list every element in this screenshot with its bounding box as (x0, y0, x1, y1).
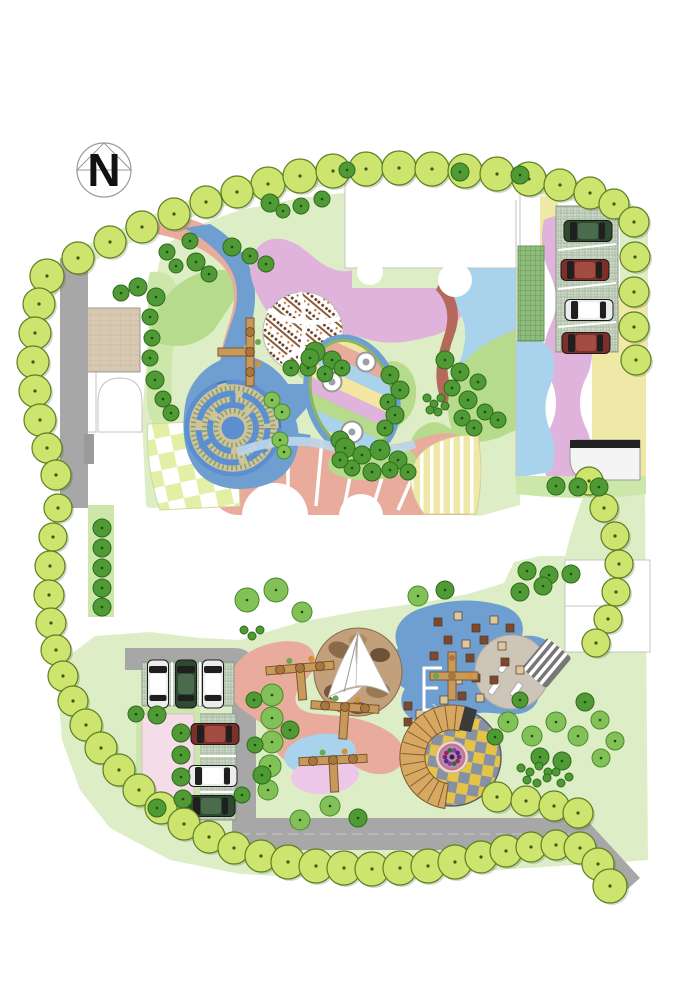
stepping-square (501, 658, 509, 666)
tree (93, 579, 111, 597)
tree (155, 391, 171, 407)
tree (172, 724, 190, 742)
tree (35, 551, 67, 583)
tree (466, 420, 482, 436)
tree (569, 478, 587, 496)
tree (276, 204, 290, 218)
stepping-square (404, 702, 412, 710)
tree (274, 404, 290, 420)
stepping-square (490, 676, 498, 684)
tree (332, 452, 348, 468)
site-plan-page: N (0, 0, 699, 989)
tree (317, 366, 333, 382)
stepping-square (458, 692, 466, 700)
tree (591, 711, 609, 729)
tree (334, 360, 350, 376)
car (148, 660, 169, 708)
tree (349, 809, 367, 827)
tree (400, 464, 416, 480)
tree (436, 351, 454, 369)
tree (511, 583, 529, 601)
compass-letter: N (87, 144, 120, 196)
tree (242, 248, 258, 264)
car (189, 766, 237, 787)
tree (234, 787, 250, 803)
tree (370, 440, 390, 460)
tree (451, 363, 469, 381)
tree (93, 559, 111, 577)
tree (533, 779, 541, 787)
tree (172, 746, 190, 764)
tree (576, 693, 594, 711)
tree (174, 790, 192, 808)
tree (301, 349, 319, 367)
north-compass: N (77, 143, 131, 197)
car (562, 333, 610, 354)
tree (129, 278, 147, 296)
tree (444, 380, 460, 396)
tree (518, 562, 536, 580)
tree (522, 726, 542, 746)
tree (511, 166, 529, 184)
tree (253, 766, 271, 784)
tree (314, 191, 330, 207)
tree (534, 577, 552, 595)
tree (283, 360, 299, 376)
stepping-square (506, 624, 514, 632)
tree (201, 266, 217, 282)
stepping-square (444, 636, 452, 644)
tree (451, 163, 469, 181)
tree (436, 581, 454, 599)
car (561, 260, 609, 281)
site-plan-svg: N (0, 0, 699, 989)
tree (148, 706, 166, 724)
tree (382, 462, 398, 478)
tree (517, 764, 525, 772)
tree (24, 404, 58, 438)
tree (264, 578, 288, 602)
stepping-square (466, 654, 474, 662)
tree (568, 726, 588, 746)
tree (547, 477, 565, 495)
tree (290, 810, 310, 830)
tree (147, 288, 165, 306)
tree (487, 729, 503, 745)
tree (159, 244, 175, 260)
tree (246, 692, 262, 708)
tree (261, 731, 283, 753)
tree (292, 602, 312, 622)
tree (363, 463, 381, 481)
stepping-square (476, 694, 484, 702)
stepping-square (434, 618, 442, 626)
tree (320, 796, 340, 816)
tree (408, 586, 428, 606)
tree (247, 737, 263, 753)
tree (441, 402, 449, 410)
tree (546, 712, 566, 732)
tree (277, 445, 291, 459)
tree (526, 768, 534, 776)
tree (377, 420, 393, 436)
fan-scallop-small (339, 494, 383, 538)
tree (498, 712, 518, 732)
tree (144, 330, 160, 346)
tree (426, 406, 434, 414)
car (176, 660, 197, 708)
tree (434, 408, 442, 416)
tree (240, 626, 248, 634)
tree (557, 779, 565, 787)
tree (235, 588, 259, 612)
tree (565, 773, 573, 781)
road-stub (84, 434, 94, 464)
tree (592, 749, 610, 767)
tree (535, 762, 543, 770)
stepping-square (480, 636, 488, 644)
stepping-square (516, 666, 524, 674)
fan-scallop-large (242, 483, 308, 549)
tree (113, 285, 129, 301)
tree (562, 565, 580, 583)
tree (339, 162, 355, 178)
tree (281, 721, 299, 739)
tree (261, 684, 283, 706)
tree (148, 799, 166, 817)
tree (523, 776, 531, 784)
tree (142, 350, 158, 366)
car (565, 300, 613, 321)
stepping-square (498, 642, 506, 650)
stepping-square (472, 624, 480, 632)
tree (606, 732, 624, 750)
tree (93, 519, 111, 537)
car (203, 660, 224, 708)
tree (256, 626, 264, 634)
tree (169, 259, 183, 273)
tree (552, 768, 560, 776)
stepping-square (440, 696, 448, 704)
tree (512, 692, 528, 708)
car (564, 221, 612, 242)
tree (590, 478, 608, 496)
tree (437, 394, 445, 402)
lightblue-band-east (516, 338, 555, 478)
tree (146, 371, 164, 389)
tree (543, 774, 551, 782)
tree (459, 391, 477, 409)
tree (187, 253, 205, 271)
tree (223, 238, 241, 256)
tree (93, 598, 111, 616)
tree (490, 412, 506, 428)
tree (142, 309, 158, 325)
trellis-strip (518, 246, 544, 341)
tree (93, 539, 111, 557)
tree (553, 752, 571, 770)
tree (182, 233, 198, 249)
tree (172, 768, 190, 786)
stepping-square (462, 640, 470, 648)
tree (470, 374, 486, 390)
arch-building (98, 378, 142, 432)
tree (258, 256, 274, 272)
tree (128, 706, 144, 722)
car (191, 724, 239, 745)
stepping-square (454, 612, 462, 620)
tree (34, 580, 66, 612)
stepping-square (430, 652, 438, 660)
stepping-square (490, 616, 498, 624)
tree (163, 405, 179, 421)
tree (39, 523, 69, 553)
tree (248, 632, 256, 640)
tree (423, 394, 431, 402)
tree (293, 198, 309, 214)
tree (261, 707, 283, 729)
